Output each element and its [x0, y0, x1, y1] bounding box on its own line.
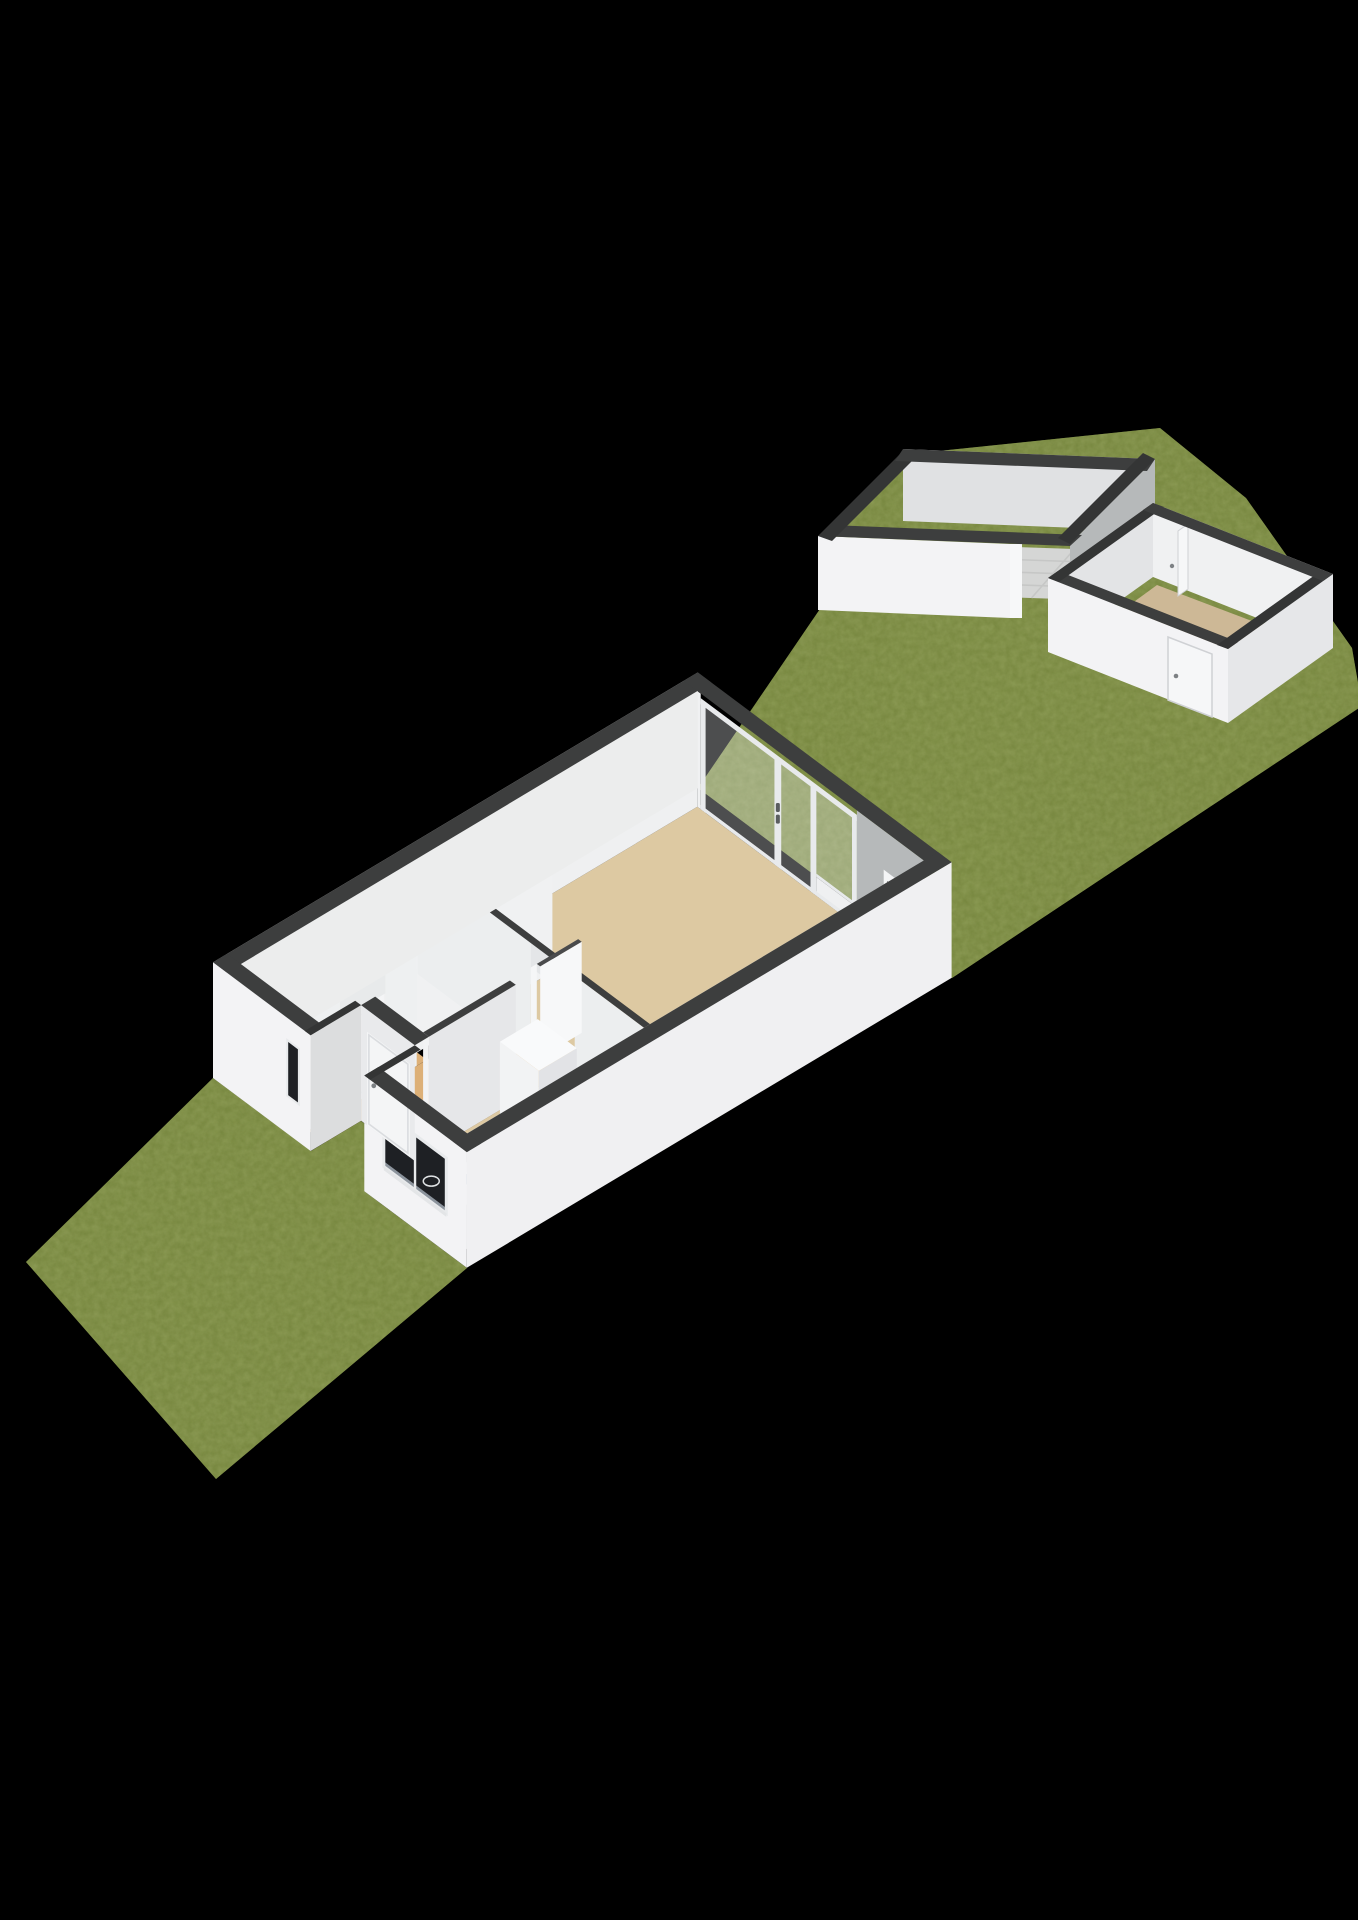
shed-large-front-wall — [818, 536, 1010, 618]
shed-large-opening-frame — [1010, 544, 1022, 618]
shed-door-handle — [1174, 674, 1179, 679]
shed-small-inner-door-frame — [1178, 524, 1188, 596]
front-door-handle — [371, 1083, 376, 1088]
back-wall-inner-sliver — [697, 691, 700, 809]
sidelight-window — [287, 1040, 299, 1104]
shed-small-inner-door-handle — [1170, 564, 1174, 568]
patio-door-handle — [776, 803, 780, 812]
floorplan-3d-scene — [0, 0, 1358, 1920]
render-canvas — [0, 0, 1358, 1920]
patio-window-mullion-2 — [811, 782, 817, 895]
patio-door-handle — [776, 815, 780, 824]
patio-window-jamb-left — [701, 700, 706, 813]
patio-window-mullion — [774, 755, 781, 869]
